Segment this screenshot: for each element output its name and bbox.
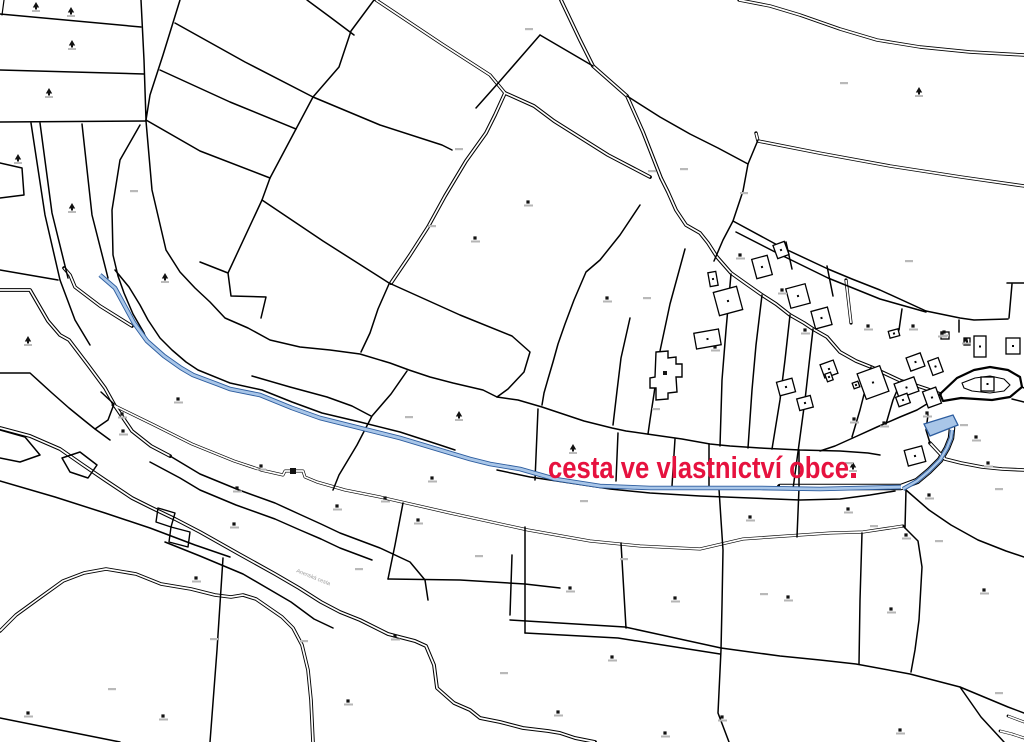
svg-text:cesta ve vlastnictví obce: cesta ve vlastnictví obce <box>548 450 849 485</box>
